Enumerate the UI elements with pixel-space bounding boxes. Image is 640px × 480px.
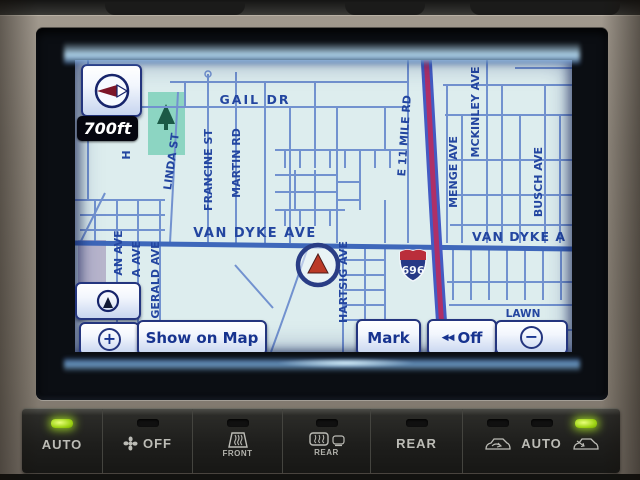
led-indicator <box>487 419 509 427</box>
front-defrost-icon <box>226 431 250 448</box>
mark-button[interactable]: Mark <box>356 319 421 352</box>
zoom-in-icon: + <box>98 328 121 351</box>
zoom-out-button[interactable]: − <box>495 320 568 352</box>
climate-auto-button[interactable]: AUTO <box>22 409 102 473</box>
street-label: BUSCH AVE <box>532 147 545 217</box>
street-label: GAIL DR <box>220 92 291 107</box>
fan-off-label: OFF <box>143 436 172 451</box>
street-label: FRANCINE ST <box>202 129 215 211</box>
show-on-map-button[interactable]: Show on Map <box>137 320 267 352</box>
street-label: AN AVE <box>112 230 125 275</box>
street-label: MCKINLEY AVE <box>469 67 482 158</box>
air-intake-controls: AUTO <box>462 409 620 473</box>
climate-control-panel: AUTO OFF <box>22 408 620 473</box>
auto-label: AUTO <box>42 437 83 452</box>
dashboard-knob <box>105 2 245 15</box>
rear-climate-button[interactable]: REAR <box>370 409 462 473</box>
led-indicator <box>51 419 73 428</box>
street-label: MARTIN RD <box>230 128 243 198</box>
zoom-in-button[interactable]: + <box>79 322 140 352</box>
fresh-air-icon[interactable] <box>572 437 599 451</box>
dashboard-trim <box>0 474 640 480</box>
street-label: HARTSIG AVE <box>337 241 350 323</box>
recirculation-icon[interactable] <box>484 437 511 451</box>
off-label: Off <box>457 329 482 347</box>
led-indicator <box>227 419 249 427</box>
led-indicator <box>575 419 597 428</box>
rear-defrost-icon <box>309 431 329 447</box>
map-scale-badge: 700ft <box>77 116 138 141</box>
interstate-696-shield: 696 <box>400 250 426 281</box>
led-indicator <box>406 419 428 427</box>
map-canvas: 696 GAIL DR VAN DYKE AVE VAN DYKE A LIND… <box>75 60 572 352</box>
map-zone-area <box>78 240 106 287</box>
dashboard-knob <box>345 2 425 15</box>
current-location-button[interactable] <box>75 282 141 320</box>
rear-defrost-button[interactable]: REAR <box>282 409 370 473</box>
compass-button[interactable] <box>81 64 142 117</box>
street-label: VAN DYKE AVE <box>193 226 317 241</box>
compass-icon <box>91 70 133 112</box>
street-label: VAN DYKE A <box>472 229 566 244</box>
freeway-center <box>426 60 444 352</box>
current-position-icon <box>95 288 121 314</box>
head-unit: 696 GAIL DR VAN DYKE AVE VAN DYKE A LIND… <box>0 0 640 480</box>
fan-icon <box>123 436 138 451</box>
led-indicator <box>137 419 159 427</box>
nav-map-display[interactable]: 696 GAIL DR VAN DYKE AVE VAN DYKE A LIND… <box>75 60 572 352</box>
mirror-defrost-icon <box>332 435 345 447</box>
current-position-marker <box>298 245 338 285</box>
screen-bezel: 696 GAIL DR VAN DYKE AVE VAN DYKE A LIND… <box>36 28 608 400</box>
led-indicator <box>531 419 553 427</box>
backlight-glow <box>64 358 580 372</box>
street-label: MENGE AVE <box>447 136 460 208</box>
rear-label: REAR <box>396 436 437 451</box>
zoom-out-icon: − <box>520 326 543 349</box>
street-label: A AVE <box>130 241 143 277</box>
dashboard-knob <box>470 2 620 15</box>
rewind-icon: ◀◀ <box>442 333 454 343</box>
dashboard-trim <box>0 0 640 16</box>
backlight-glow <box>276 358 416 368</box>
street-label: H <box>120 150 133 159</box>
climate-auto-right-label[interactable]: AUTO <box>521 436 562 451</box>
street-label: GERALD AVE <box>149 241 162 318</box>
fan-off-button[interactable]: OFF <box>102 409 192 473</box>
street-label: LAWN <box>506 308 541 320</box>
led-indicator <box>316 419 338 427</box>
rear-defrost-label: REAR <box>314 448 339 457</box>
front-defrost-button[interactable]: FRONT <box>192 409 282 473</box>
traffic-off-button[interactable]: ◀◀ Off <box>427 319 497 352</box>
shield-number: 696 <box>402 264 425 277</box>
front-label: FRONT <box>222 449 252 458</box>
